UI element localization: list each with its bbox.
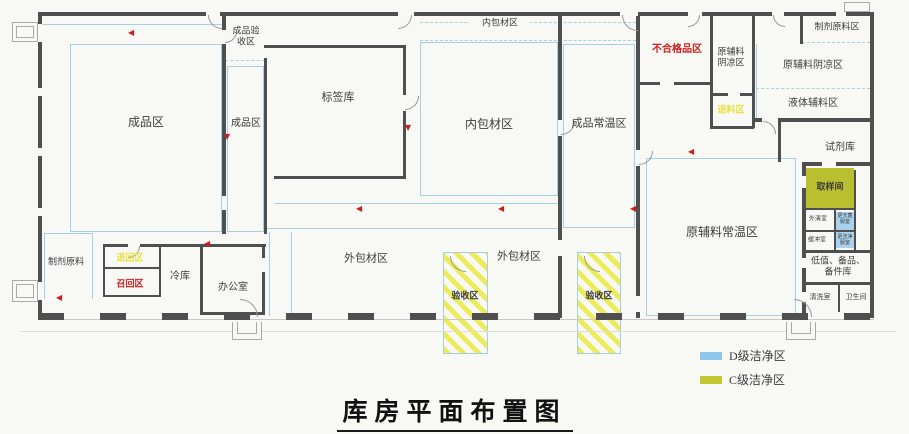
- wall: [38, 12, 42, 318]
- clean-zone-line: [274, 203, 558, 204]
- wall: [274, 176, 406, 179]
- wall: [558, 12, 562, 318]
- wall: [103, 267, 161, 269]
- entrance-canopy: [16, 284, 34, 298]
- wall: [103, 295, 161, 297]
- drawing-title: 库房平面布置图: [336, 392, 572, 432]
- wall: [103, 245, 105, 297]
- room-label-zhiji-yuanliao-qu: 制剂原料区: [807, 22, 867, 33]
- door-swing-arc: [208, 15, 222, 29]
- d-grade-label: D级洁净区: [729, 347, 786, 364]
- room-label-zhiji-yuanliao: 制剂原料: [44, 257, 88, 268]
- wall-opening: [558, 240, 562, 256]
- door-swing-arc: [398, 15, 412, 29]
- ground-line: [20, 331, 896, 332]
- wall-opening: [222, 196, 226, 210]
- entrance-canopy: [16, 26, 34, 38]
- room-label-neibaocai-corridor: 内包材区: [470, 18, 530, 29]
- wall-opening: [836, 12, 846, 16]
- room-label-neibaocai-qu: 内包材区: [444, 117, 534, 131]
- wall-opening: [802, 176, 806, 188]
- wall-opening: [38, 24, 42, 42]
- exterior-stair: [237, 322, 257, 334]
- room-label-tuihui-qu: 退回区: [108, 253, 152, 264]
- door-swing-arc: [405, 96, 419, 110]
- door-swing-arc: [763, 121, 776, 134]
- wall: [802, 208, 854, 210]
- legend-row-c-grade: C级洁净区: [700, 371, 785, 388]
- room-label-yanshou-qu-1: 验收区: [447, 291, 483, 302]
- door-swing-arc: [240, 299, 258, 317]
- room-label-waiqing-shi: 外清室: [807, 216, 829, 223]
- c-grade-swatch: [700, 376, 722, 384]
- d-grade-swatch: [700, 352, 722, 360]
- clean-zone-dashed-line: [420, 40, 636, 41]
- room-label-quyang-jian: 取样间: [809, 182, 851, 193]
- entrance-canopy: [844, 2, 870, 12]
- wall: [200, 245, 203, 315]
- wall-opening: [38, 148, 42, 156]
- room-label-leng-ku: 冷库: [160, 271, 200, 283]
- wall: [264, 58, 267, 234]
- clean-zone-dashed-line: [802, 42, 870, 43]
- flow-arrow: ◀: [688, 148, 694, 156]
- room-label-qingxi-shi: 清洗室: [807, 293, 833, 301]
- room-label-chengpin-qu: 成品区: [91, 115, 201, 129]
- wall: [262, 245, 265, 315]
- flow-arrow: ◀: [498, 205, 504, 213]
- room-label-yuanfuliao-yinliang-qu: 原辅料阴凉区: [772, 60, 854, 72]
- wall: [800, 12, 803, 44]
- flow-arrow: ◀: [356, 205, 362, 213]
- clean-zone-line: [44, 233, 92, 234]
- wall-opening: [262, 258, 265, 272]
- door-swing-arc: [773, 15, 785, 27]
- wall-opening: [660, 82, 674, 85]
- wall: [802, 250, 874, 253]
- clean-zone-dashed-line: [756, 88, 870, 89]
- wall-opening: [728, 93, 740, 96]
- clean-zone-boundary: [227, 66, 264, 232]
- room-label-chengpin-qu-2: 成品区: [226, 118, 266, 130]
- wall: [752, 12, 755, 128]
- room-label-zhaohui-qu: 召回区: [108, 279, 152, 290]
- wall-opening: [822, 162, 836, 166]
- wall: [802, 230, 854, 232]
- room-label-bangong-shi: 办公室: [208, 282, 258, 294]
- exterior-stair: [791, 322, 811, 334]
- room-label-dizhi-beipin-ku: 低值、备品、备件库: [807, 255, 869, 276]
- wall: [403, 48, 406, 178]
- floor-plan: ◀▼▼◀◀◀◀◀◀成品区成品验收区成品区标签库内包材区内包材区成品常温区不合格品…: [0, 0, 909, 434]
- clean-zone-dashed-line: [225, 60, 265, 61]
- wall-opening: [636, 296, 640, 312]
- clean-zone-line: [291, 232, 292, 316]
- wall-opening: [38, 208, 42, 216]
- door-swing-arc: [622, 15, 638, 31]
- room-label-chengpin-yanshou-qu: 成品验收区: [229, 25, 263, 46]
- flow-arrow: ▼: [224, 133, 230, 141]
- wall: [778, 122, 781, 162]
- door-swing-arc: [688, 15, 700, 27]
- clean-zone-line: [756, 44, 757, 118]
- door-swing-arc: [794, 299, 812, 317]
- clean-zone-line: [42, 24, 222, 25]
- room-label-yuanfuliao-changwen-qu: 原辅料常温区: [667, 225, 777, 239]
- wall: [838, 284, 840, 312]
- clean-zone-boundary: [70, 44, 222, 232]
- c-grade-label: C级洁净区: [729, 371, 785, 388]
- wall: [264, 45, 406, 48]
- room-label-weisheng-jian: 卫生间: [843, 293, 869, 301]
- flow-arrow: ◀: [128, 29, 134, 37]
- wall-opening: [802, 258, 806, 268]
- clean-zone-boundary: [563, 44, 635, 228]
- wall-opening: [38, 88, 42, 96]
- clean-zone-line: [269, 232, 270, 316]
- room-label-buhegepin-qu: 不合格品区: [646, 44, 708, 56]
- room-label-waibaocai-qu-1: 外包材区: [326, 253, 406, 266]
- room-label-waibaocai-qu-2: 外包材区: [483, 251, 555, 264]
- flow-arrow: ◀: [56, 294, 62, 302]
- clean-zone-line: [92, 233, 93, 299]
- room-label-geng-wujun-fu-shi: 更无菌服室: [836, 214, 854, 226]
- wall: [38, 12, 874, 16]
- room-label-yanshou-qu-2: 验收区: [581, 291, 617, 302]
- room-label-yeti-fuliao-qu: 液体辅料区: [777, 98, 849, 110]
- room-label-geng-jiejing-fu-shi: 更洁净服室: [836, 235, 854, 247]
- clean-zone-line: [267, 228, 558, 229]
- wall-opening: [38, 282, 42, 300]
- room-label-huanchong-shi: 缓冲室: [806, 237, 828, 244]
- flow-arrow: ◀: [630, 205, 636, 213]
- flow-arrow: ◀: [204, 240, 210, 248]
- bottom-wall-windows: [38, 313, 874, 320]
- room-label-chengpin-changwen-qu: 成品常温区: [564, 118, 634, 131]
- wall: [710, 126, 754, 129]
- room-label-yuanfuliao-yinliang-xiao: 原辅料阴凉区: [715, 46, 747, 67]
- flow-arrow: ▼: [405, 124, 411, 132]
- room-label-biaoqian-ku: 标签库: [298, 92, 378, 105]
- room-label-shiji-ku: 试剂库: [818, 142, 862, 154]
- wall: [802, 162, 874, 166]
- legend-row-d-grade: D级洁净区: [700, 347, 786, 364]
- room-label-tuiliao-qu: 退料区: [711, 105, 751, 116]
- wall: [639, 82, 713, 85]
- wall: [854, 170, 856, 252]
- plan-canvas: ◀▼▼◀◀◀◀◀◀成品区成品验收区成品区标签库内包材区内包材区成品常温区不合格品…: [0, 0, 909, 434]
